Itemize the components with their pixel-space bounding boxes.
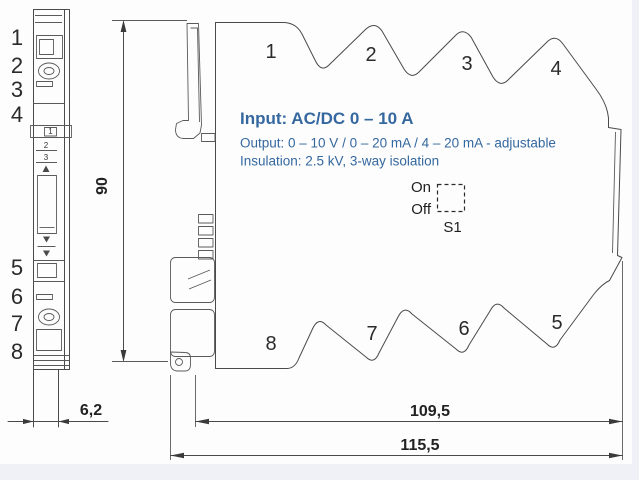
front-screw-top <box>39 63 60 79</box>
side-terminal-6: 6 <box>458 318 469 340</box>
dim-1155-value: 115,5 <box>400 437 439 454</box>
clip-slider-lower <box>171 310 215 357</box>
switch-off-label: Off <box>411 201 432 218</box>
side-terminal-5: 5 <box>551 312 562 334</box>
front-mini-label-1: 1 <box>48 127 53 136</box>
dim-90-value: 90 <box>94 177 111 195</box>
dim-1155-arrow-right <box>609 453 623 459</box>
front-terminal-2: 2 <box>11 53 23 78</box>
front-base-extension <box>34 370 59 428</box>
front-vent-box <box>38 264 57 278</box>
side-terminal-3: 3 <box>461 53 472 75</box>
front-terminal-1: 1 <box>11 25 23 50</box>
front-mini-label-2: 2 <box>44 141 49 150</box>
drawing-page: 1 2 3 1 2 3 4 5 6 7 8 6,2 <box>0 0 639 480</box>
window-edge-bottom <box>0 464 639 480</box>
front-terminal-5: 5 <box>11 255 23 280</box>
front-terminal-6: 6 <box>11 284 23 309</box>
side-terminal-8: 8 <box>265 333 276 355</box>
clip-tooth-1 <box>199 215 214 224</box>
front-top-cap-lines <box>35 16 62 23</box>
front-terminal-opening-bottom <box>37 330 62 351</box>
side-terminal-7: 7 <box>366 323 377 345</box>
side-right-lip-inner <box>613 132 616 253</box>
front-slot-bottom <box>37 295 53 300</box>
dip-switch-s1: On Off S1 <box>411 179 465 236</box>
spec-output: Output: 0 – 10 V / 0 – 20 mA / 4 – 20 mA… <box>240 136 556 151</box>
dim-62-arrow-right <box>59 419 70 424</box>
switch-dashed-box <box>438 185 465 212</box>
front-terminal-opening-top <box>37 36 63 59</box>
spec-input: Input: AC/DC 0 – 10 A <box>240 109 413 128</box>
front-label-window <box>38 176 57 234</box>
front-terminal-numbers: 1 2 3 4 5 6 7 8 <box>11 25 23 364</box>
front-terminal-8: 8 <box>11 339 23 364</box>
clip-spring-lines <box>188 270 211 289</box>
side-terminal-4: 4 <box>550 58 561 80</box>
side-terminal-1: 1 <box>265 41 276 63</box>
side-bottom-wavy-edge <box>216 281 610 369</box>
dim-1095-arrow-left <box>196 419 210 425</box>
clip-slider-upper <box>171 258 215 303</box>
front-down-arrow-marker-2 <box>43 251 50 257</box>
front-view: 1 2 3 <box>31 10 72 428</box>
side-terminal-numbers: 1 2 3 4 8 7 6 5 <box>265 41 562 355</box>
clip-foot <box>171 352 191 371</box>
front-screw-bottom-slot <box>44 314 54 321</box>
dim-90-arrow-top <box>121 20 127 32</box>
front-terminal-4: 4 <box>11 102 23 127</box>
spec-text-block: Input: AC/DC 0 – 10 A Output: 0 – 10 V /… <box>240 109 556 169</box>
clip-top-hook-inner <box>191 28 200 122</box>
dim-90-arrow-bottom <box>121 350 127 362</box>
front-screw-top-slot <box>44 68 54 75</box>
front-screw-bottom <box>39 309 60 325</box>
front-up-arrow-marker <box>43 166 50 173</box>
dim-1095-arrow-right <box>609 419 623 425</box>
dimension-height: 90 <box>94 20 187 362</box>
switch-name-label: S1 <box>443 219 461 236</box>
front-terminal-3: 3 <box>11 77 23 102</box>
dimension-depths: 109,5 115,5 <box>171 261 623 460</box>
dim-62-value: 6,2 <box>80 402 102 419</box>
window-edge-right <box>632 0 639 480</box>
clip-tooth-2 <box>199 227 214 236</box>
din-rail-clip <box>171 24 216 372</box>
dim-extension-lines <box>171 261 623 460</box>
dim-1155-arrow-left <box>171 453 185 459</box>
switch-on-label: On <box>411 179 431 196</box>
front-down-arrow-marker-1 <box>43 237 50 243</box>
side-terminal-2: 2 <box>365 44 376 66</box>
front-mini-label-3: 3 <box>44 153 49 162</box>
dim-62-arrow-left <box>23 419 34 424</box>
front-terminal-inner-top <box>40 40 54 55</box>
clip-foot-detail <box>176 359 183 366</box>
dim-1095-value: 109,5 <box>410 403 450 420</box>
front-slot-top <box>37 82 53 87</box>
clip-top-support <box>202 134 216 142</box>
technical-drawing: 1 2 3 1 2 3 4 5 6 7 8 6,2 <box>0 0 639 480</box>
clip-tooth-3 <box>199 239 214 248</box>
front-terminal-7: 7 <box>11 311 23 336</box>
spec-insulation: Insulation: 2.5 kV, 3-way isolation <box>240 154 439 169</box>
